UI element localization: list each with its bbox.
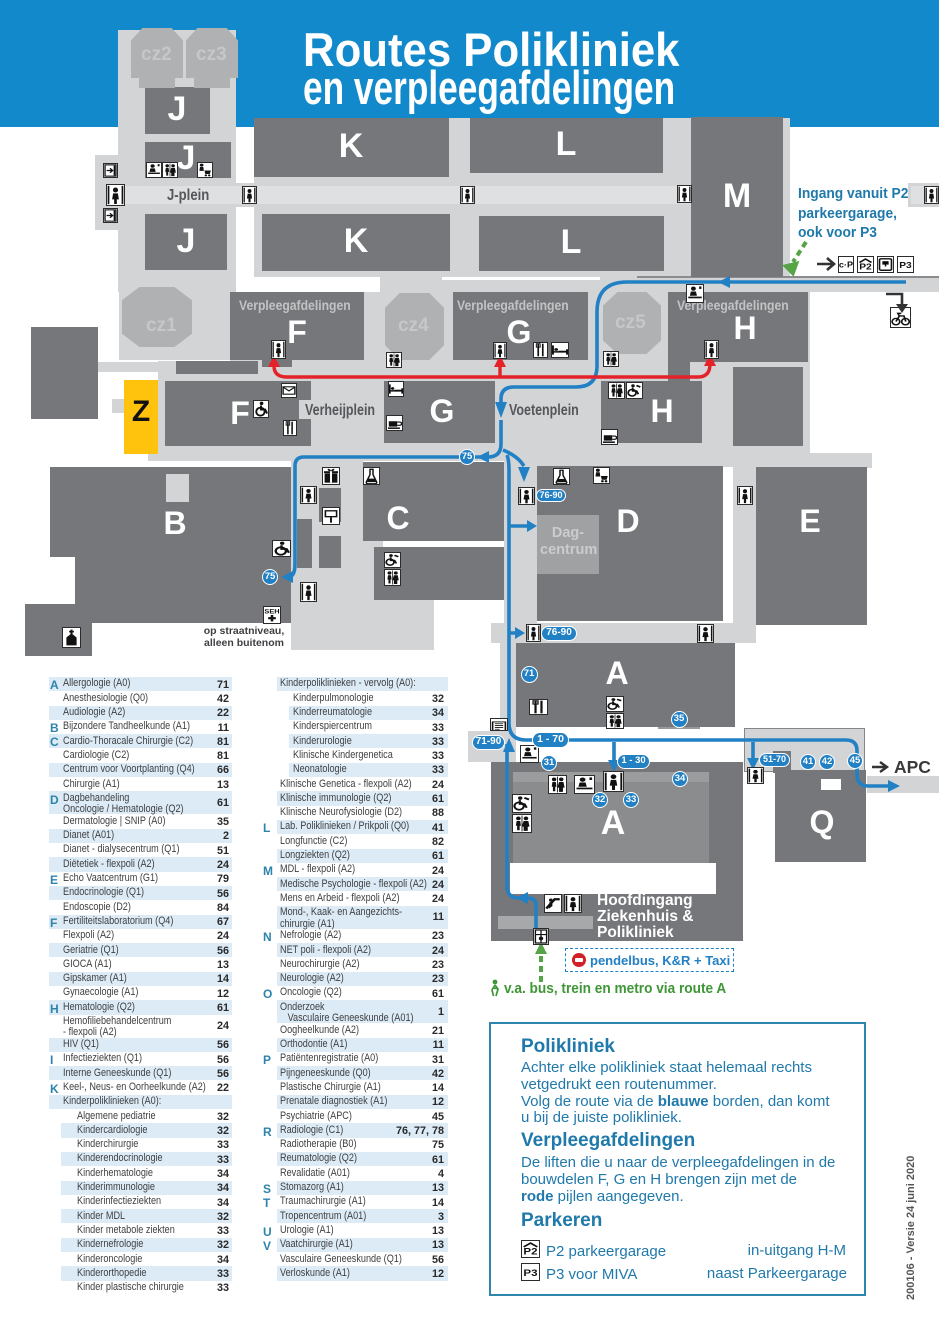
svg-text:c·P: c·P [839,260,853,269]
svg-text:P3: P3 [899,261,911,270]
svg-text:SEH: SEH [264,609,279,615]
svg-text:P2: P2 [523,1247,537,1257]
svg-text:P3: P3 [523,1269,537,1279]
svg-text:P2: P2 [859,262,871,271]
